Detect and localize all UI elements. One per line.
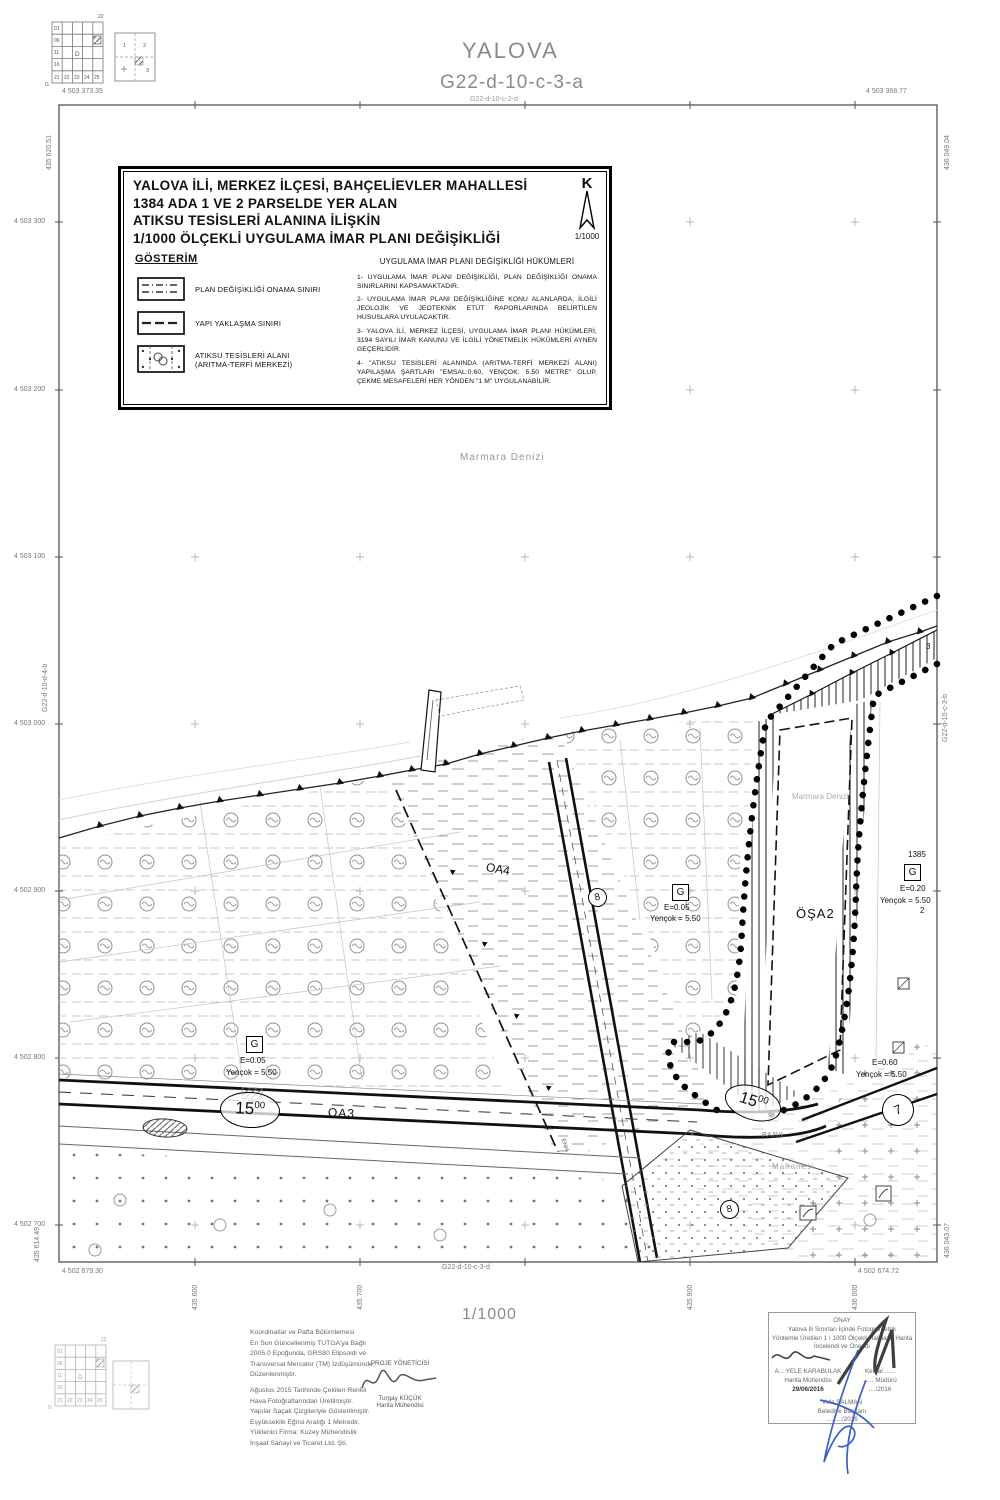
legend-symbol-onama	[137, 277, 185, 301]
svg-text:21: 21	[54, 75, 60, 81]
svg-text:22: 22	[98, 14, 104, 20]
block-1385: 1385	[908, 850, 926, 859]
svg-text:06: 06	[54, 38, 60, 44]
legend-label-onama: PLAN DEĞİŞİKLİĞİ ONAMA SINIRI	[195, 285, 320, 294]
plan-title-line1: YALOVA İLİ, MERKEZ İLÇESİ, BAHÇELİEVLER …	[133, 177, 563, 195]
zone-osa2: ÖŞA2	[796, 906, 835, 921]
svg-text:11: 11	[57, 1373, 62, 1379]
provision-1: 1- UYGULAMA İMAR PLANI DEĞİŞİKLİĞİ, PLAN…	[357, 273, 597, 291]
plan-title-line3: ATIKSU TESİSLERİ ALANINA İLİŞKİN	[133, 212, 563, 230]
north-scale: 1/1000	[567, 232, 607, 241]
north-arrow: K 1/1000	[567, 175, 607, 241]
legend-title: GÖSTERİM	[135, 253, 198, 265]
svg-text:22: 22	[67, 1398, 73, 1404]
legend-symbol-yaklasma	[137, 311, 185, 335]
index-grid-bl: 01 06 11 16 21 22 23 24 25 D 22 G	[48, 1337, 149, 1411]
svg-text:23: 23	[74, 75, 80, 81]
svg-text:01: 01	[54, 26, 60, 32]
svg-text:24: 24	[87, 1398, 93, 1404]
svg-text:16: 16	[54, 62, 60, 68]
svg-text:D: D	[78, 1374, 83, 1381]
north-arrow-icon	[577, 190, 597, 230]
legend-label-atiksu-1: ATIKSU TESİSLERİ ALANI	[195, 351, 292, 360]
yencok-se: Yençok = 5.50	[856, 1070, 907, 1079]
svg-text:16: 16	[57, 1385, 63, 1391]
sea-label-2: Marmara Denizi	[792, 792, 848, 801]
pm-signature	[362, 1370, 436, 1388]
yencok-left: Yençok = 5.50	[226, 1068, 277, 1077]
zone-oa3: OA3	[328, 1105, 356, 1120]
svg-text:3: 3	[146, 68, 149, 74]
svg-text:24: 24	[84, 75, 90, 81]
svg-text:22: 22	[101, 1337, 107, 1343]
road-width-left-value: 15	[235, 1098, 255, 1118]
svg-text:2: 2	[143, 43, 146, 49]
parcel-3: 3	[926, 642, 930, 651]
provisions-title: UYGULAMA İMAR PLANI DEĞİŞİKLİĞİ HÜKÜMLER…	[357, 257, 597, 266]
plan-title: YALOVA İLİ, MERKEZ İLÇESİ, BAHÇELİEVLER …	[133, 177, 563, 247]
plan-title-line4: 1/1000 ÖLÇEKLİ UYGULAMA İMAR PLANI DEĞİŞ…	[133, 230, 563, 248]
g-box-right: G	[904, 864, 921, 881]
yencok-center: Yençok = 5.50	[650, 914, 701, 923]
e-left: E=0.05	[240, 1056, 266, 1065]
provision-2: 2- UYGULAMA İMAR PLANI DEĞİŞİKLİĞİNE KON…	[357, 295, 597, 322]
svg-text:06: 06	[57, 1361, 63, 1367]
plan-sheet: { "header": { "city": "YALOVA", "sheet":…	[0, 0, 1000, 1500]
plan-title-line2: 1384 ADA 1 VE 2 PARSELDE YER ALAN	[133, 195, 563, 213]
legend-label-atiksu-2: (ARITMA-TERFİ MERKEZİ)	[195, 360, 292, 369]
svg-text:01: 01	[57, 1349, 63, 1355]
svg-text:23: 23	[77, 1398, 83, 1404]
road-island	[143, 1118, 188, 1138]
mahalle-label: Mahallesi	[772, 1162, 815, 1171]
park-label: PARK.	[762, 1132, 788, 1139]
e-right: E=0.20	[900, 884, 926, 893]
road-width-right-sup: 00	[756, 1093, 770, 1107]
road-width-left-sup: 00	[254, 1100, 265, 1112]
e-center: E=0.05	[664, 903, 690, 912]
legend-symbol-atiksu	[137, 345, 185, 373]
onay-signature-2	[838, 1320, 894, 1384]
svg-text:22: 22	[64, 75, 70, 81]
yencok-right: Yençok = 5.50	[880, 896, 931, 905]
provision-3: 3- YALOVA İLİ, MERKEZ İLÇESİ, UYGULAMA İ…	[357, 327, 597, 354]
g-box-left: G	[246, 1036, 263, 1053]
provision-4: 4- "ATIKSU TESİSLERİ ALANINDA (ARITMA-TE…	[357, 359, 597, 386]
legend-label-atiksu: ATIKSU TESİSLERİ ALANI (ARITMA-TERFİ MER…	[195, 351, 292, 370]
sea-label: Marmara Denizi	[460, 452, 545, 463]
legend-label-yaklasma: YAPI YAKLAŞMA SINIRI	[195, 319, 281, 328]
svg-text:11: 11	[54, 50, 59, 56]
svg-text:25: 25	[94, 75, 100, 81]
svg-text:G: G	[45, 82, 49, 88]
parcel-2: 2	[920, 906, 924, 915]
g-box-center: G	[672, 884, 689, 901]
svg-text:D: D	[75, 51, 80, 58]
svg-text:25: 25	[97, 1398, 103, 1404]
road-width-right-value: 15	[737, 1089, 759, 1111]
svg-text:21: 21	[57, 1398, 63, 1404]
svg-text:1: 1	[123, 43, 126, 49]
svg-text:G: G	[48, 1405, 52, 1411]
title-block: YALOVA İLİ, MERKEZ İLÇESİ, BAHÇELİEVLER …	[118, 166, 612, 410]
onay-signature-1	[772, 1352, 830, 1360]
e-se: E=0.60	[872, 1058, 898, 1067]
north-letter: K	[567, 175, 607, 192]
